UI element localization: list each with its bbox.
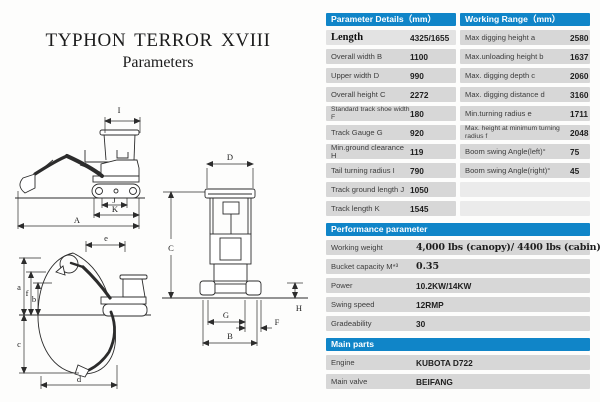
- dim-label-e: e: [104, 233, 108, 243]
- table-row: Max. height at minimum turning radius f …: [460, 125, 590, 140]
- table-row: Length 4325/1655: [326, 30, 456, 45]
- table-row: Boom swing Angle(right)° 45: [460, 163, 590, 178]
- working-range-header: Working Range（mm）: [460, 13, 590, 26]
- table-row: Overall height C 2272: [326, 87, 456, 102]
- range-label: Min.turning radius e: [460, 110, 570, 118]
- dim-label-H: H: [296, 303, 302, 313]
- dim-label-B: B: [227, 331, 233, 341]
- range-label: Max digging height a: [460, 34, 570, 42]
- param-label: Track ground length J: [326, 186, 410, 194]
- table-row: Main valve BEIFANG: [326, 374, 590, 389]
- part-label: Engine: [326, 359, 416, 367]
- param-value: 2272: [410, 90, 456, 100]
- param-value: 180: [410, 109, 456, 119]
- perf-label: Gradeability: [326, 320, 416, 328]
- perf-label: Working weight: [326, 244, 416, 252]
- dim-label-F: F: [275, 317, 280, 327]
- model-name: TYPHON TERROR XVIII: [8, 30, 308, 52]
- range-label: Max.unloading height b: [460, 53, 570, 61]
- param-value: 790: [410, 166, 456, 176]
- performance-header: Performance parameter: [326, 223, 590, 236]
- param-value: 119: [410, 147, 456, 157]
- range-value: 2060: [570, 71, 590, 81]
- range-view-machine: [56, 255, 147, 377]
- param-value: 990: [410, 71, 456, 81]
- dim-label-K: K: [112, 204, 119, 214]
- front-view-diagram: D C G B F H: [160, 112, 312, 347]
- dim-label-c: c: [17, 339, 21, 349]
- param-label: Track Gauge G: [326, 129, 410, 137]
- table-row: Overall width B 1100: [326, 49, 456, 64]
- working-range-column: Working Range（mm） Max digging height a 2…: [460, 13, 590, 220]
- perf-label: Power: [326, 282, 416, 290]
- range-value: 2048: [570, 128, 590, 138]
- main-parts-section: Main parts Engine KUBOTA D722 Main valve…: [326, 338, 590, 393]
- table-row: Max digging height a 2580: [460, 30, 590, 45]
- table-row: Max. digging distance d 3160: [460, 87, 590, 102]
- table-row: Min.turning radius e 1711: [460, 106, 590, 121]
- dim-label-a: a: [17, 282, 21, 292]
- table-row: Max.unloading height b 1637: [460, 49, 590, 64]
- front-view-machine: [162, 189, 308, 298]
- range-value: 3160: [570, 90, 590, 100]
- table-row: Gradeability 30: [326, 316, 590, 331]
- range-label: Boom swing Angle(left)°: [460, 148, 570, 156]
- range-label: Boom swing Angle(right)°: [460, 167, 570, 175]
- param-value: 920: [410, 128, 456, 138]
- working-range-diagram: e a f b c d: [5, 232, 157, 400]
- table-row: Min.ground clearance H 119: [326, 144, 456, 159]
- table-row: Track ground length J 1050: [326, 182, 456, 197]
- range-value: 45: [570, 166, 590, 176]
- param-label: Overall height C: [326, 91, 410, 99]
- range-value: 1637: [570, 52, 590, 62]
- param-label: Min.ground clearance H: [326, 144, 410, 160]
- empty-row: [460, 182, 590, 197]
- dimensions-section: Parameter Details（mm） Length 4325/1655 O…: [326, 13, 590, 220]
- table-row: Swing speed 12RMP: [326, 297, 590, 312]
- table-row: Tail turning radius I 790: [326, 163, 456, 178]
- dim-label-b: b: [32, 294, 36, 304]
- param-value: 1100: [410, 52, 456, 62]
- perf-value: 12RMP: [416, 300, 590, 310]
- perf-value: 30: [416, 319, 590, 329]
- range-value: 75: [570, 147, 590, 157]
- perf-value: 4,000 lbs (canopy)/ 4400 lbs (cabin): [416, 242, 600, 253]
- table-row: Working weight 4,000 lbs (canopy)/ 4400 …: [326, 240, 590, 255]
- table-row: Max. digging depth c 2060: [460, 68, 590, 83]
- range-label: Max. height at minimum turning radius f: [460, 125, 570, 139]
- part-value: KUBOTA D722: [416, 358, 590, 368]
- perf-label: Swing speed: [326, 301, 416, 309]
- range-label: Max. digging distance d: [460, 91, 570, 99]
- performance-section: Performance parameter Working weight 4,0…: [326, 223, 590, 335]
- table-row: Track Gauge G 920: [326, 125, 456, 140]
- param-value: 1545: [410, 204, 456, 214]
- perf-label: Bucket capacity M*³: [326, 263, 416, 271]
- param-label: Length: [326, 32, 410, 43]
- table-row: Track length K 1545: [326, 201, 456, 216]
- param-label: Upper width D: [326, 72, 410, 80]
- table-row: Bucket capacity M*³ 0.35: [326, 259, 590, 274]
- dim-label-D: D: [227, 152, 233, 162]
- param-label: Track length K: [326, 205, 410, 213]
- param-value: 4325/1655: [410, 33, 456, 43]
- param-label: Overall width B: [326, 53, 410, 61]
- range-label: Max. digging depth c: [460, 72, 570, 80]
- side-view-machine: [15, 130, 145, 198]
- table-row: Boom swing Angle(left)° 75: [460, 144, 590, 159]
- dim-label-A: A: [74, 215, 81, 225]
- side-view-diagram: I J K A: [5, 98, 157, 248]
- main-parts-header: Main parts: [326, 338, 590, 351]
- title-subtitle: Parameters: [8, 54, 308, 72]
- perf-value: 0.35: [416, 261, 590, 272]
- excavator-spec-sheet: TYPHON TERROR XVIII Parameters: [0, 0, 600, 402]
- range-value: 1711: [570, 109, 590, 119]
- dim-label-f: f: [26, 288, 29, 298]
- dim-label-G: G: [223, 310, 229, 320]
- parameter-details-header: Parameter Details（mm）: [326, 13, 456, 26]
- table-row: Engine KUBOTA D722: [326, 355, 590, 370]
- parameter-details-column: Parameter Details（mm） Length 4325/1655 O…: [326, 13, 456, 220]
- param-label: Standard track shoe width F: [326, 106, 410, 120]
- table-row: Power 10.2KW/14KW: [326, 278, 590, 293]
- perf-value: 10.2KW/14KW: [416, 281, 590, 291]
- table-row: Upper width D 990: [326, 68, 456, 83]
- part-value: BEIFANG: [416, 377, 590, 387]
- dim-label-C: C: [168, 243, 174, 253]
- param-value: 1050: [410, 185, 456, 195]
- param-label: Tail turning radius I: [326, 167, 410, 175]
- part-label: Main valve: [326, 378, 416, 386]
- empty-row: [460, 201, 590, 216]
- range-value: 2580: [570, 33, 590, 43]
- table-row: Standard track shoe width F 180: [326, 106, 456, 121]
- page-title: TYPHON TERROR XVIII Parameters: [8, 30, 308, 72]
- dim-label-I: I: [118, 105, 121, 115]
